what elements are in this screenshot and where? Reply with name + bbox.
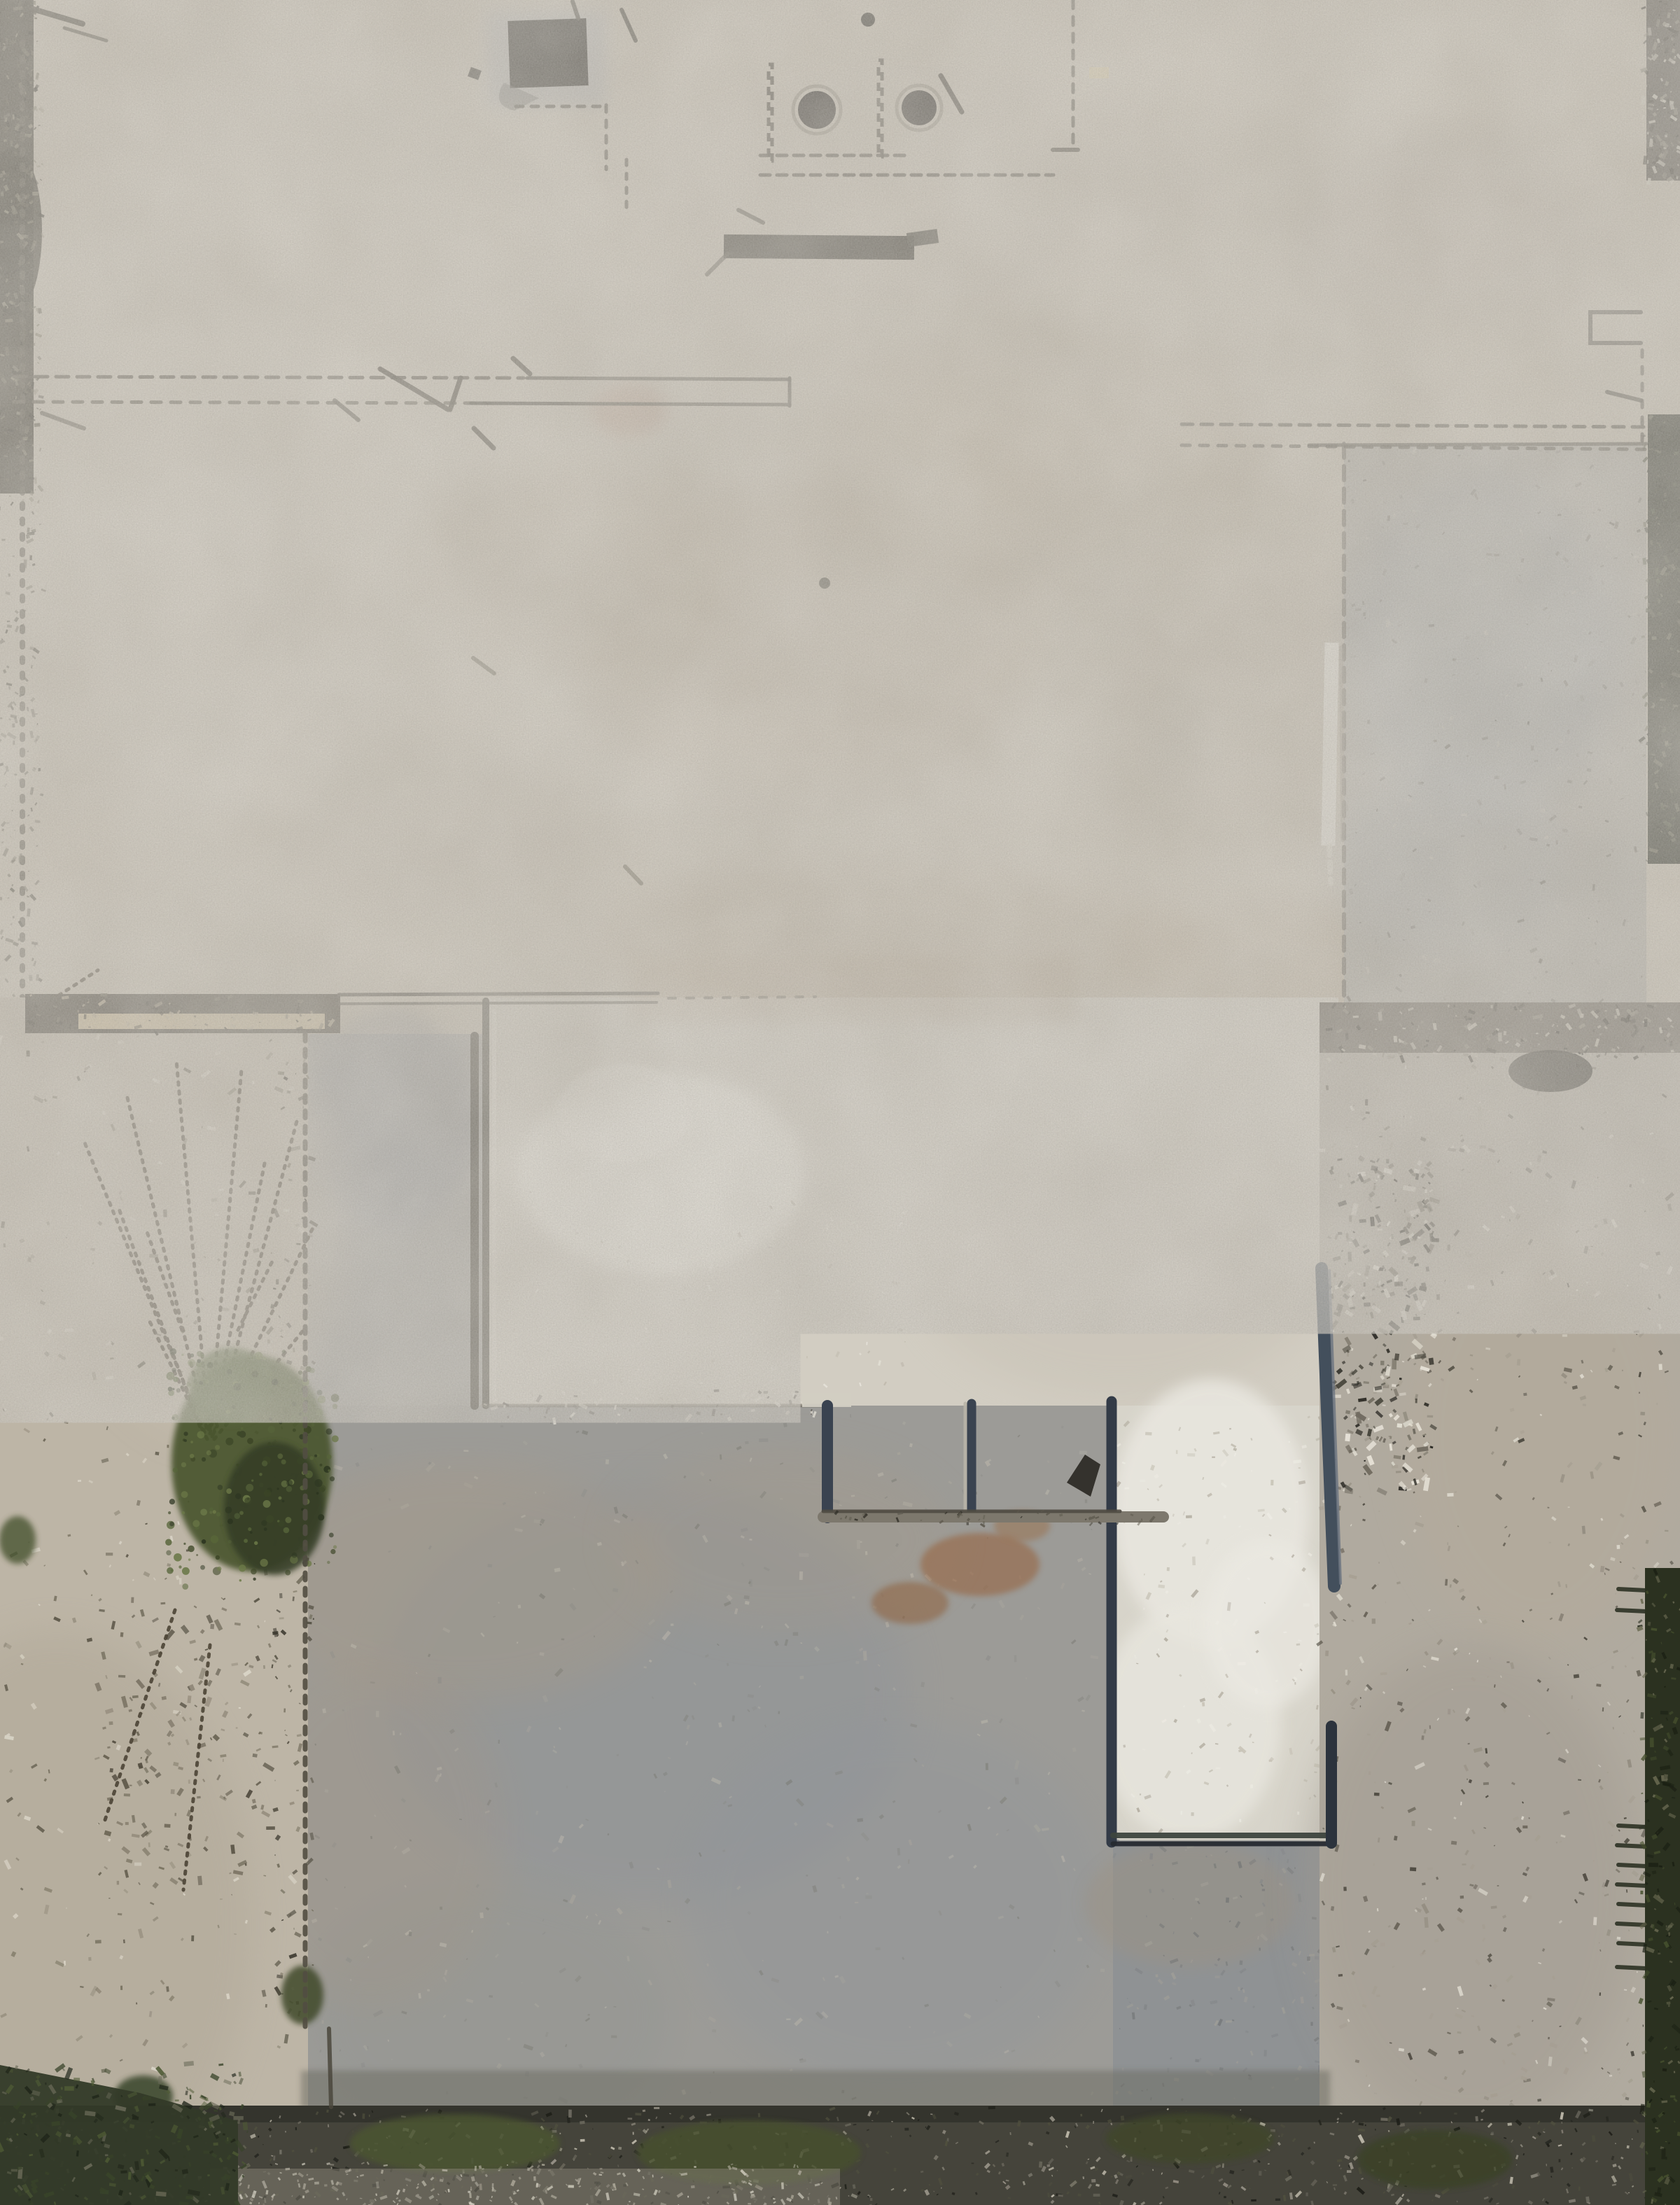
aerial-photo-viewport [0,0,1680,2205]
scene-root [0,0,1680,2205]
aerial-photo [0,0,1680,2205]
